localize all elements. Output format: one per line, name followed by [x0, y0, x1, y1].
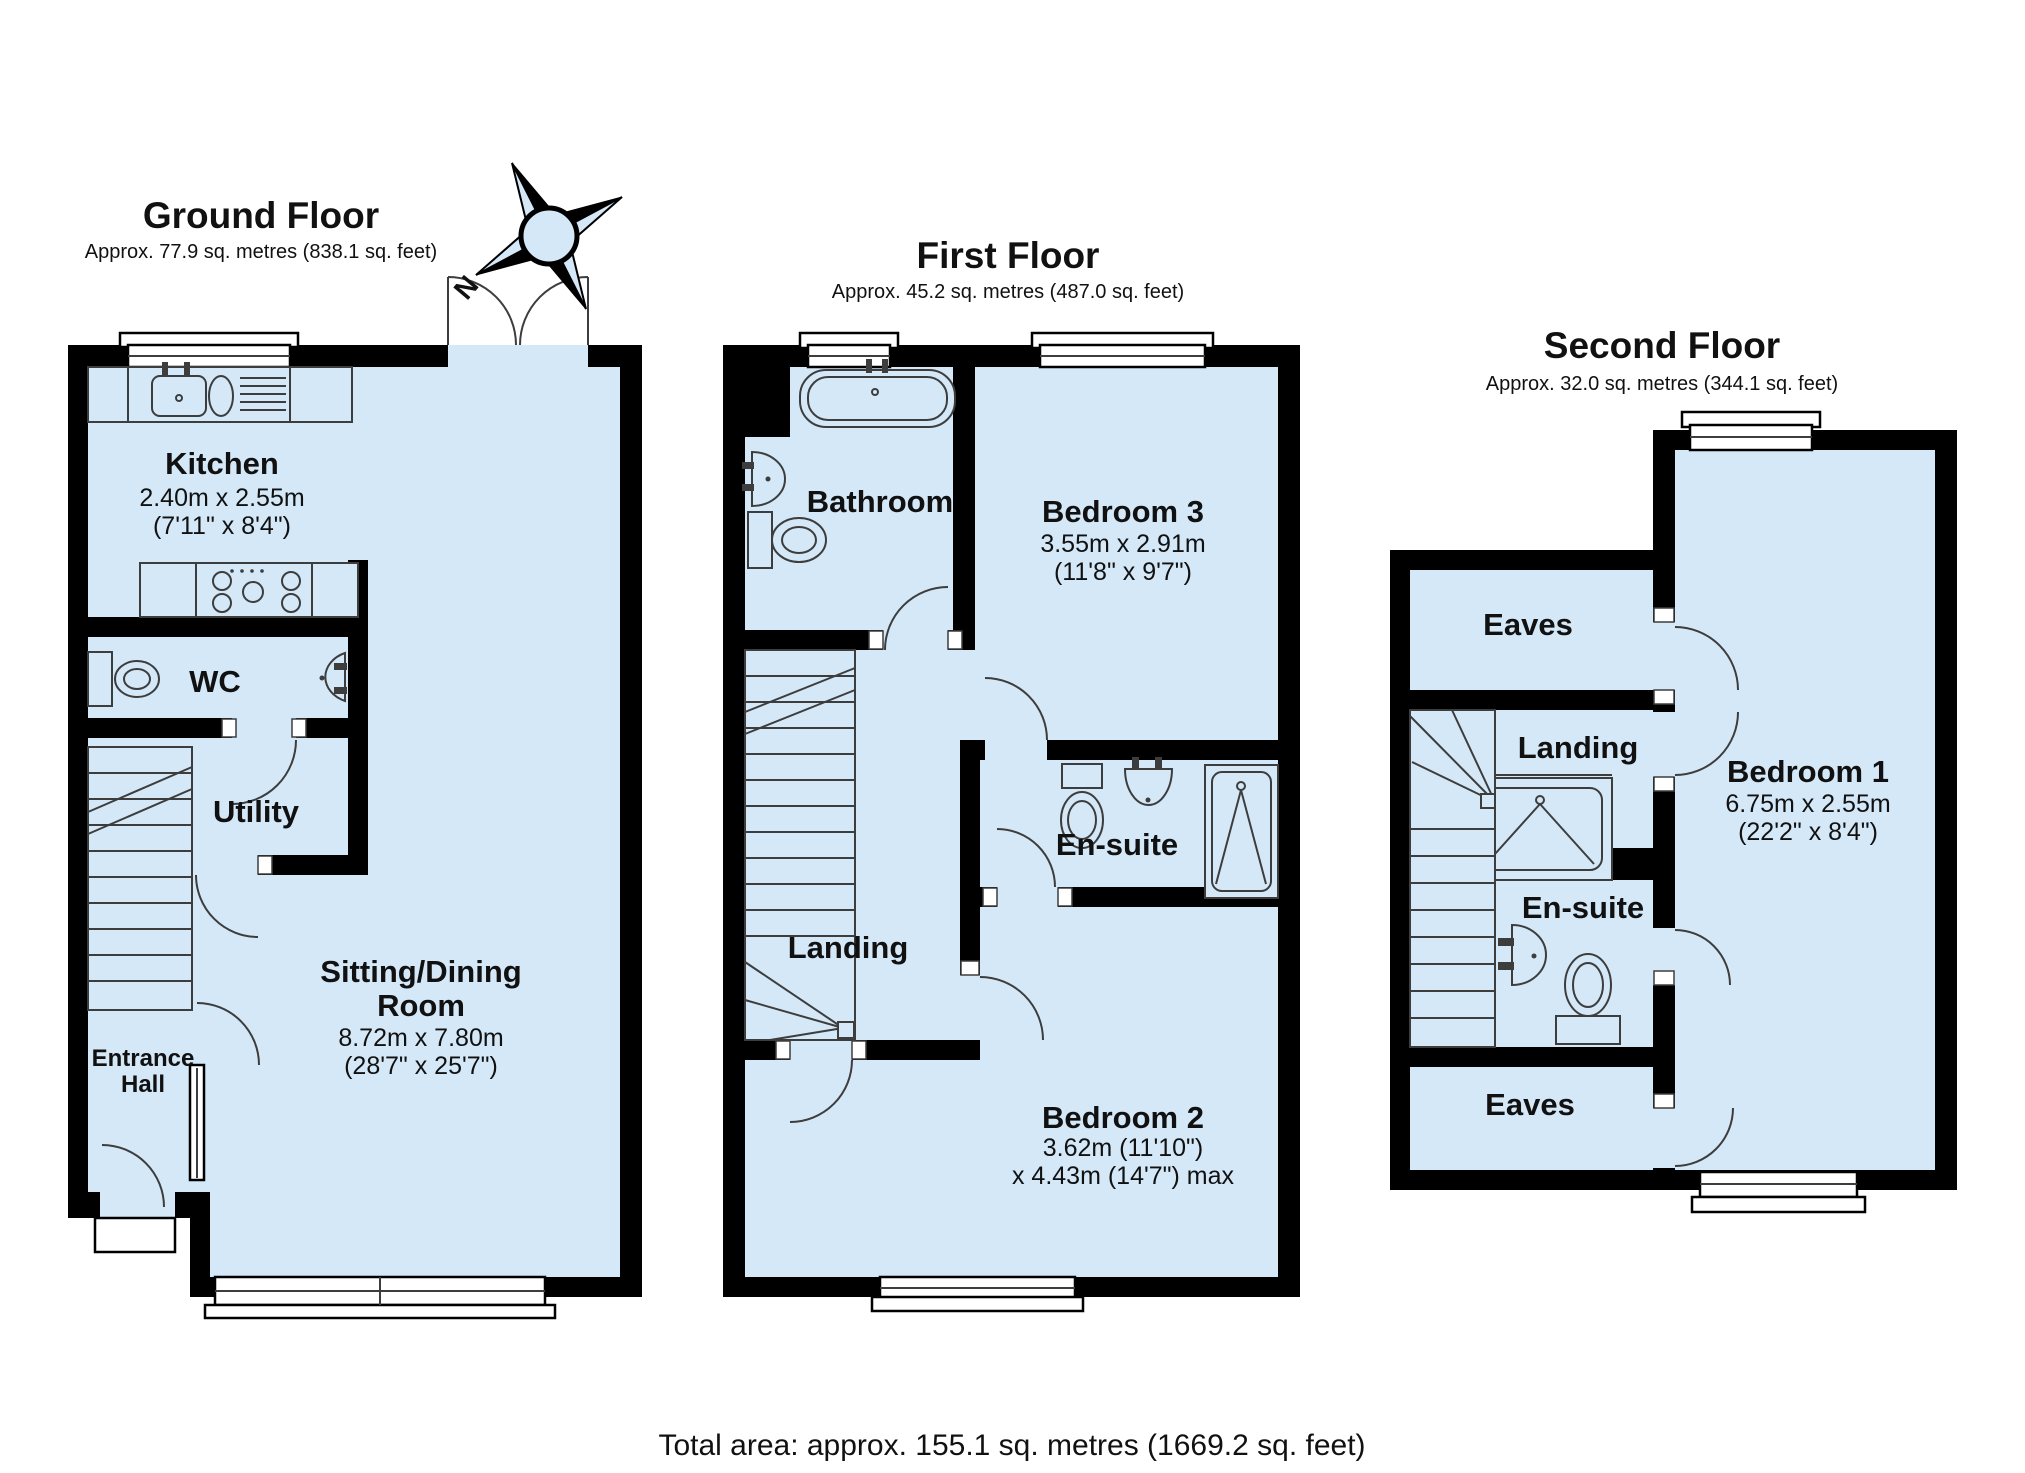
ground-floor-plan: Ground Floor Approx. 77.9 sq. metres (83…	[68, 195, 642, 1318]
bathroom-label: Bathroom	[807, 484, 953, 519]
sitting-dining-dims-metric: 8.72m x 7.80m	[338, 1024, 503, 1052]
sitting-dining-label-line1: Sitting/Dining	[320, 954, 521, 989]
bedroom1-dims-metric: 6.75m x 2.55m	[1725, 790, 1890, 818]
second-floor-title: Second Floor	[1544, 325, 1780, 366]
bedroom3-window	[1032, 333, 1213, 367]
ground-top-window	[120, 333, 298, 367]
door-jamb	[869, 631, 883, 649]
floorplan-canvas: Ground Floor Approx. 77.9 sq. metres (83…	[0, 0, 2025, 1473]
front-porch-step	[95, 1218, 175, 1252]
door-jamb	[258, 856, 272, 874]
first-ensuite-label: En-suite	[1056, 827, 1178, 862]
kitchen-dims-metric: 2.40m x 2.55m	[139, 484, 304, 512]
kitchen-dims-imperial: (7'11" x 8'4")	[153, 512, 291, 540]
second-ensuite-label: En-suite	[1522, 890, 1644, 925]
hall-glazed-screen	[190, 1065, 204, 1180]
compass-north-label: N	[448, 270, 485, 305]
bedroom3-label: Bedroom 3	[1042, 494, 1204, 529]
bedroom2-dims-line1: 3.62m (11'10")	[1043, 1134, 1204, 1162]
kitchen-label: Kitchen	[165, 446, 279, 481]
second-floor-plan: Second Floor Approx. 32.0 sq. metres (34…	[1390, 325, 1957, 1212]
door-jamb	[983, 888, 997, 906]
bedroom3-dims-metric: 3.55m x 2.91m	[1040, 530, 1205, 558]
bedroom2-label: Bedroom 2	[1042, 1100, 1204, 1135]
entrance-hall-label-line1: Entrance	[92, 1045, 195, 1072]
bedroom2-dims-line2: x 4.43m (14'7") max	[1012, 1162, 1235, 1190]
bathtub-icon	[800, 359, 955, 427]
door-jamb	[222, 719, 236, 737]
door-jamb	[776, 1041, 790, 1059]
door-jamb	[961, 961, 979, 975]
second-floor-subtitle: Approx. 32.0 sq. metres (344.1 sq. feet)	[1486, 373, 1838, 395]
hob-icon	[140, 563, 358, 617]
first-floor-title: First Floor	[917, 235, 1100, 276]
first-floor-subtitle: Approx. 45.2 sq. metres (487.0 sq. feet)	[832, 281, 1184, 303]
compass-rose-icon: N	[448, 163, 622, 309]
bedroom1-dims-imperial: (22'2" x 8'4")	[1738, 818, 1878, 846]
ground-floor-subtitle: Approx. 77.9 sq. metres (838.1 sq. feet)	[85, 241, 437, 263]
door-jamb	[1654, 690, 1674, 704]
bedroom3-dims-imperial: (11'8" x 9'7")	[1054, 558, 1192, 586]
kitchen-counter-icon	[88, 362, 352, 422]
bedroom1-bottom-window	[1692, 1172, 1865, 1212]
utility-label: Utility	[213, 794, 300, 829]
first-stairs	[745, 650, 855, 1040]
second-stairs	[1410, 710, 1495, 1047]
eaves-bottom-label: Eaves	[1485, 1087, 1575, 1122]
entrance-hall-label-line2: Hall	[121, 1071, 165, 1098]
ground-bay-window	[205, 1277, 555, 1318]
door-jamb	[1058, 888, 1072, 906]
total-area-label: Total area: approx. 155.1 sq. metres (16…	[658, 1429, 1365, 1462]
door-jamb	[948, 631, 962, 649]
door-jamb	[1654, 1094, 1674, 1108]
ground-floor-title: Ground Floor	[143, 195, 379, 236]
ground-stairs	[88, 747, 192, 1010]
door-jamb	[292, 719, 306, 737]
eaves-top-label: Eaves	[1483, 607, 1573, 642]
first-ensuite-shower-icon	[1205, 765, 1278, 898]
bedroom1-top-window	[1682, 412, 1820, 450]
bedroom2-window	[872, 1277, 1083, 1311]
door-jamb	[1654, 971, 1674, 985]
second-landing-label: Landing	[1518, 730, 1639, 765]
door-jamb	[1654, 777, 1674, 791]
first-floor-plan: First Floor Approx. 45.2 sq. metres (487…	[723, 235, 1300, 1311]
door-jamb	[1654, 608, 1674, 622]
wc-label: WC	[189, 664, 241, 699]
first-landing-label: Landing	[788, 930, 909, 965]
door-jamb	[852, 1041, 866, 1059]
sitting-dining-dims-imperial: (28'7" x 25'7")	[344, 1052, 498, 1080]
sitting-dining-label-line2: Room	[377, 988, 465, 1023]
bedroom1-label: Bedroom 1	[1727, 754, 1889, 789]
